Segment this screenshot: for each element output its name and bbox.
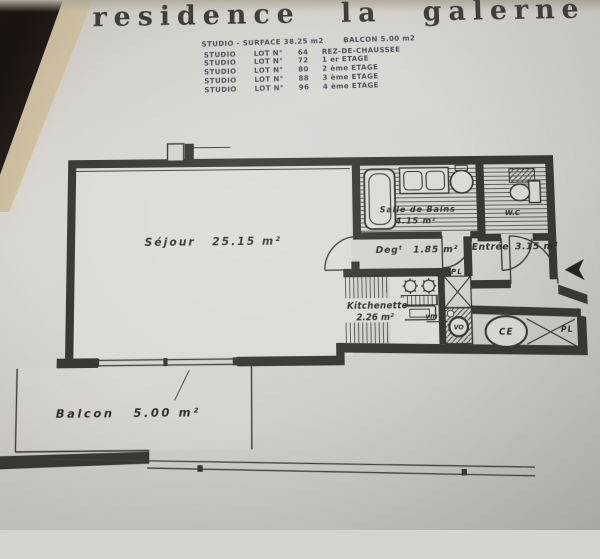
chauffe-eau-label: CE: [499, 326, 514, 337]
placard-cross: [444, 276, 472, 308]
round-washbasin-icon: [450, 170, 473, 193]
photographed-plan-page: residence la galerne STUDIO - SURFACE 38…: [0, 0, 600, 530]
balcon-summary: BALCON 5.00 m2: [343, 33, 459, 44]
lot-label: LOT N°: [254, 66, 298, 75]
sejour-label-group: Séjour25.15 m²: [145, 235, 283, 249]
toilet-tank: [529, 181, 541, 203]
lot-table: STUDIO - SURFACE 38.25 m2 BALCON 5.00 m2…: [202, 33, 462, 94]
balcon-label: Balcon: [56, 406, 115, 421]
entree-bottom-wall: [471, 280, 511, 289]
bathroom-label: Salle de Bains: [380, 204, 456, 214]
ce-top-wall: [471, 304, 581, 318]
wc-duct-hatch: [509, 169, 535, 183]
lot-label: LOT N°: [254, 75, 298, 84]
lot-number: 64: [298, 47, 322, 56]
lot-label: LOT N°: [254, 57, 298, 66]
duct-flue: [185, 144, 194, 162]
sejour-bottom-wall-right: [237, 356, 345, 367]
lot-number: 80: [298, 65, 322, 74]
lot-number: 88: [298, 74, 322, 83]
vm-outlet-dot: [447, 310, 454, 317]
bathroom-left-wall: [352, 165, 361, 239]
toilet-icon: [510, 184, 530, 201]
deg-label-group: Degᵗ1.85 m²: [376, 245, 459, 256]
bathroom-area: 4.15 m²: [395, 216, 436, 226]
sejour-floor: [73, 165, 353, 358]
kitchenette-area: 2.26 m²: [356, 312, 394, 323]
lot-table-rows: STUDIOLOT N°64REZ-DE-CHAUSSEE STUDIOLOT …: [204, 43, 462, 94]
placard-top-label: PL: [451, 268, 463, 277]
page-title: residence la galerne: [92, 0, 600, 33]
entree-area: 3.15 m²: [515, 242, 558, 253]
deg-label: Degᵗ: [376, 245, 403, 256]
lot-label: LOT N°: [254, 48, 298, 57]
balcon-area: 5.00 m²: [133, 405, 200, 420]
vm-label: vm: [425, 312, 437, 321]
lot-number: 96: [299, 83, 323, 92]
lot-type: STUDIO: [204, 85, 254, 95]
wc-bottom-wall-a: [477, 234, 501, 242]
page-content: residence la galerne STUDIO - SURFACE 38…: [0, 0, 600, 559]
entree-label-group: Entrée3.15 m²: [472, 241, 559, 253]
roof-duct: [167, 144, 193, 163]
vide-ordures-label: VO: [454, 324, 464, 332]
placard-right-label: PL: [561, 324, 574, 334]
deg-area: 1.85 m²: [413, 245, 458, 256]
lot-label: LOT N°: [255, 83, 299, 92]
sejour-label: Séjour: [145, 236, 196, 249]
sejour-area: 25.15 m²: [212, 235, 282, 248]
entrance-arrow-icon: [564, 259, 584, 280]
bathroom-bottom-wall-a: [353, 231, 442, 239]
entrance-corner-wall: [558, 284, 588, 304]
wc-label: W.C: [505, 209, 521, 217]
ce-right-wall: [577, 315, 588, 353]
sejour-bottom-wall-left: [57, 358, 99, 368]
kitchenette-label: Kitchenette: [347, 300, 408, 311]
duct-box: [167, 144, 183, 161]
lot-number: 72: [298, 56, 322, 65]
floor-plan: Séjour25.15 m² Salle de Bains 4.15 m² W.…: [0, 132, 600, 559]
entree-label: Entrée: [472, 241, 510, 253]
